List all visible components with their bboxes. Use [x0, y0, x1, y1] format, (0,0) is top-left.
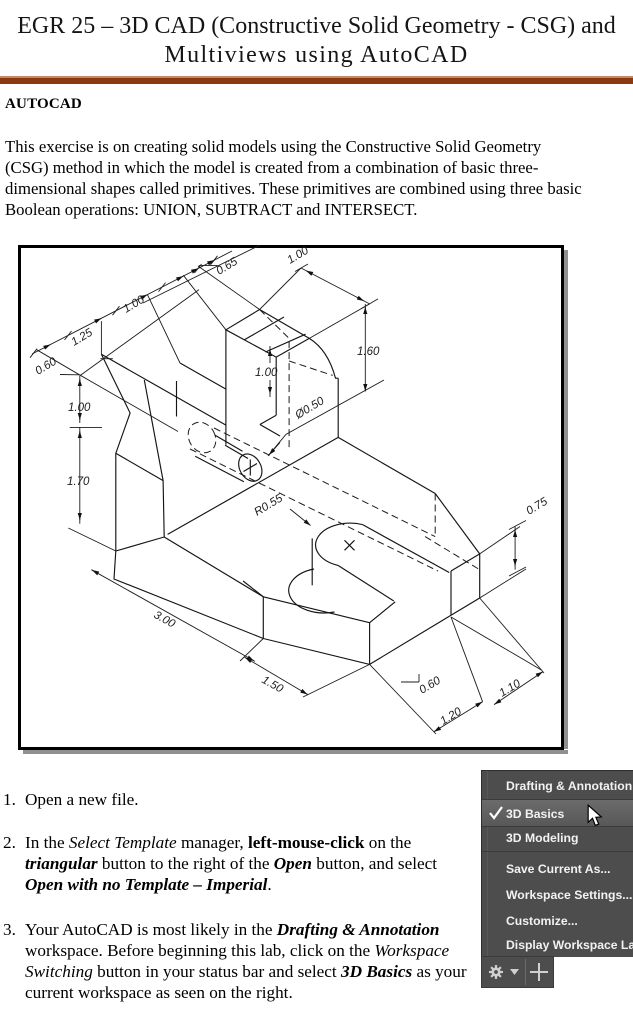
svg-text:R0.55: R0.55 — [252, 492, 285, 518]
svg-text:1.60: 1.60 — [357, 346, 380, 358]
svg-text:0.60: 0.60 — [33, 355, 59, 377]
svg-text:3.00: 3.00 — [152, 609, 178, 631]
svg-text:0.65: 0.65 — [214, 255, 240, 277]
svg-text:1.50: 1.50 — [260, 674, 286, 696]
svg-text:1.00: 1.00 — [285, 245, 311, 267]
svg-text:Ø0.50: Ø0.50 — [293, 395, 327, 422]
svg-text:0.60: 0.60 — [417, 674, 443, 696]
svg-text:0.75: 0.75 — [524, 495, 550, 517]
svg-text:1.00: 1.00 — [68, 402, 91, 414]
svg-text:1.00: 1.00 — [255, 367, 278, 379]
svg-text:1.20: 1.20 — [438, 705, 464, 727]
svg-text:1.25: 1.25 — [69, 326, 95, 348]
svg-text:1.70: 1.70 — [67, 476, 90, 488]
svg-text:1.10: 1.10 — [497, 677, 523, 699]
